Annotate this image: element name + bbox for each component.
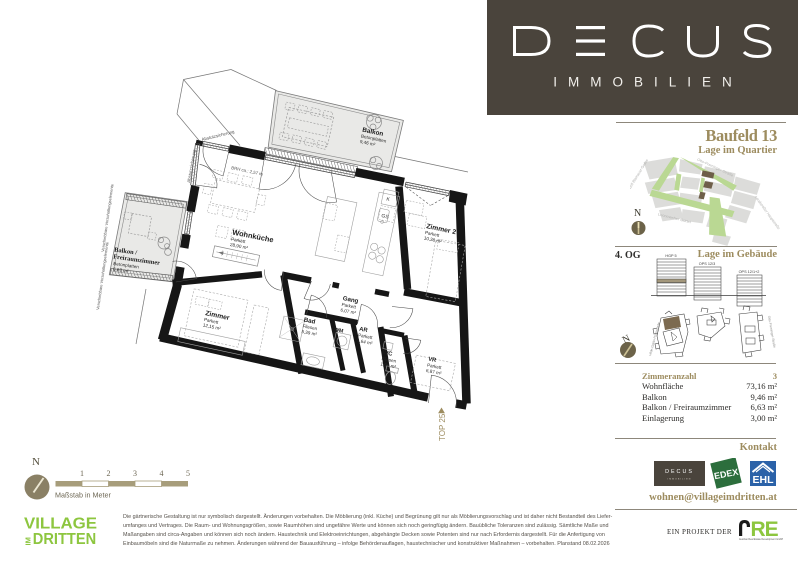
svg-text:VILLAGE: VILLAGE xyxy=(24,516,97,533)
svg-text:3: 3 xyxy=(133,469,137,478)
svg-text:Maßstab in Meter: Maßstab in Meter xyxy=(55,491,112,500)
svg-text:2: 2 xyxy=(107,469,111,478)
svg-text:4: 4 xyxy=(160,469,164,478)
svg-text:IM: IM xyxy=(24,537,33,545)
svg-text:DRITTEN: DRITTEN xyxy=(33,531,96,548)
svg-text:1: 1 xyxy=(80,469,84,478)
svg-text:5: 5 xyxy=(186,469,190,478)
